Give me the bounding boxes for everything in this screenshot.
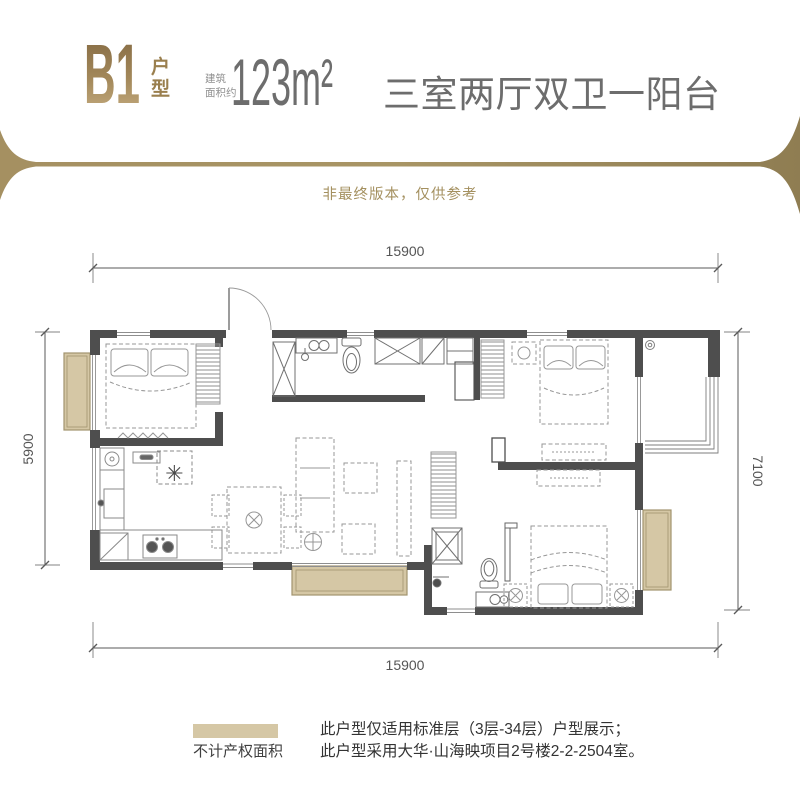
legend-label: 不计产权面积 <box>193 740 283 761</box>
dimension-bottom-label: 15900 <box>386 657 425 673</box>
legend-swatch <box>193 724 278 738</box>
dimension-left <box>35 328 60 569</box>
floor-plan: ✳ <box>0 230 800 710</box>
bathroom1-fixtures <box>273 338 473 396</box>
balcony-center <box>292 566 407 595</box>
dimension-left-label: 5900 <box>20 433 36 464</box>
platform-right <box>643 510 671 590</box>
bedroom3-furniture <box>431 452 633 608</box>
floor-drain-icon <box>646 341 655 350</box>
wall-pillar <box>492 438 505 462</box>
bay-window <box>645 377 718 453</box>
dimension-top-label: 15900 <box>386 243 425 259</box>
stove-symbol-icon: ✳ <box>165 461 183 486</box>
kitchen-fixtures <box>98 448 222 560</box>
dimension-bottom <box>89 622 722 658</box>
note-line2: 此户型采用大华·山海映项目2号楼2-2-2504室。 <box>320 741 644 763</box>
entry-door <box>229 288 271 330</box>
disclaimer-text: 非最终版本，仅供参考 <box>0 183 800 204</box>
dimension-right <box>724 328 750 614</box>
note-line1: 此户型仅适用标准层（3层-34层）户型展示； <box>320 719 644 741</box>
duct-shaft <box>455 362 474 400</box>
dining-furniture <box>212 487 301 553</box>
platform-left <box>64 353 90 430</box>
dimension-right-label: 7100 <box>750 455 766 486</box>
living-room-furniture <box>296 438 411 556</box>
floorplan-page: B1 户型 建筑 面积约 123m² 三室两厅双卫一阳台 非最终版本，仅供参考 <box>0 0 800 800</box>
notes: 此户型仅适用标准层（3层-34层）户型展示； 此户型采用大华·山海映项目2号楼2… <box>320 719 644 764</box>
bedroom1-furniture <box>106 344 220 438</box>
